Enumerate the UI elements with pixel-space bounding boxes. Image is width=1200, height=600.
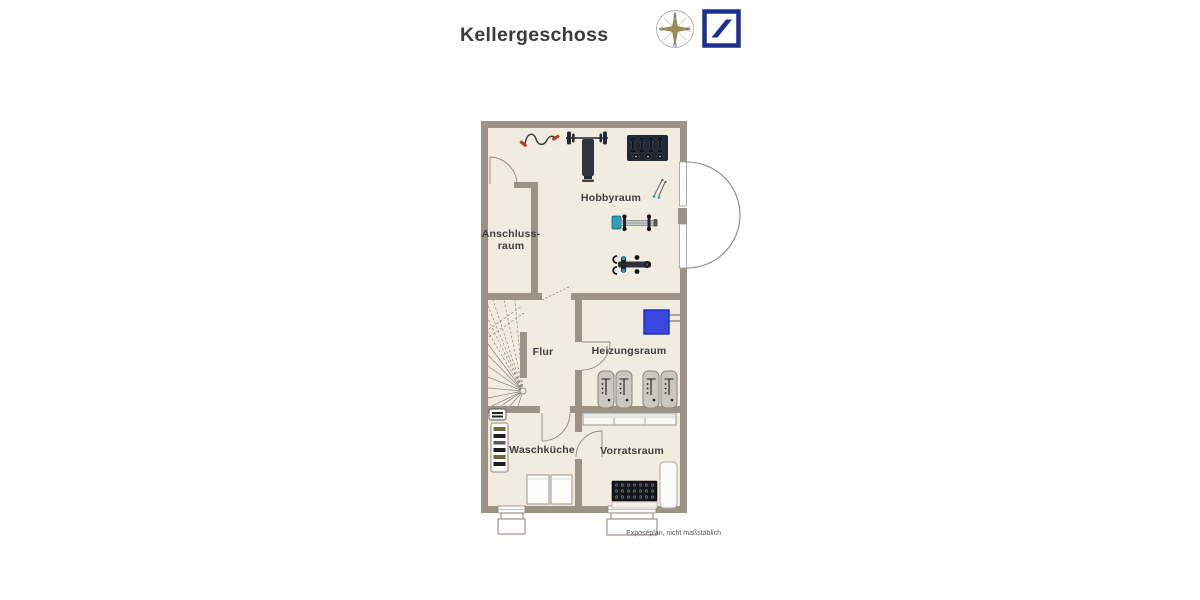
room-label-hobbyraum: Hobbyraum: [571, 192, 651, 204]
room-label-waschkueche: Waschküche: [497, 444, 587, 456]
room-label-flur: Flur: [518, 346, 568, 358]
room-label-vorratsraum: Vorratsraum: [587, 445, 677, 457]
freezer-icon: [660, 462, 677, 508]
compass-north-label: N: [673, 43, 677, 49]
bottle-crate-icon: [612, 481, 657, 508]
washing-machine-icons: [527, 475, 572, 504]
room-label-anschlussraum-line1: Anschluss-: [476, 228, 546, 240]
room-label-heizungsraum: Heizungsraum: [584, 345, 674, 357]
deutsche-bank-logo: [702, 9, 741, 48]
light-well-left: [498, 513, 525, 534]
compass-west-label: W: [685, 26, 691, 32]
plan-footnote: Exposéplan, nicht maßstäblich: [571, 530, 721, 537]
window-left: [498, 506, 525, 513]
room-label-anschlussraum-line2: raum: [476, 240, 546, 252]
page: Kellergeschoss S N O W: [0, 0, 1200, 600]
floor-plan: [455, 110, 745, 550]
storage-shelf-icon: [583, 413, 676, 425]
compass-east-label: O: [659, 27, 664, 33]
dumbbell-rack-icon: [627, 135, 668, 161]
vent-icon: [489, 409, 506, 420]
page-title: Kellergeschoss: [460, 24, 608, 47]
room-label-anschlussraum: Anschluss- raum: [476, 228, 546, 252]
compass-rose-icon: S N O W: [654, 7, 696, 51]
door-arc-exterior: [687, 162, 740, 268]
compass-south-label: S: [673, 13, 677, 19]
